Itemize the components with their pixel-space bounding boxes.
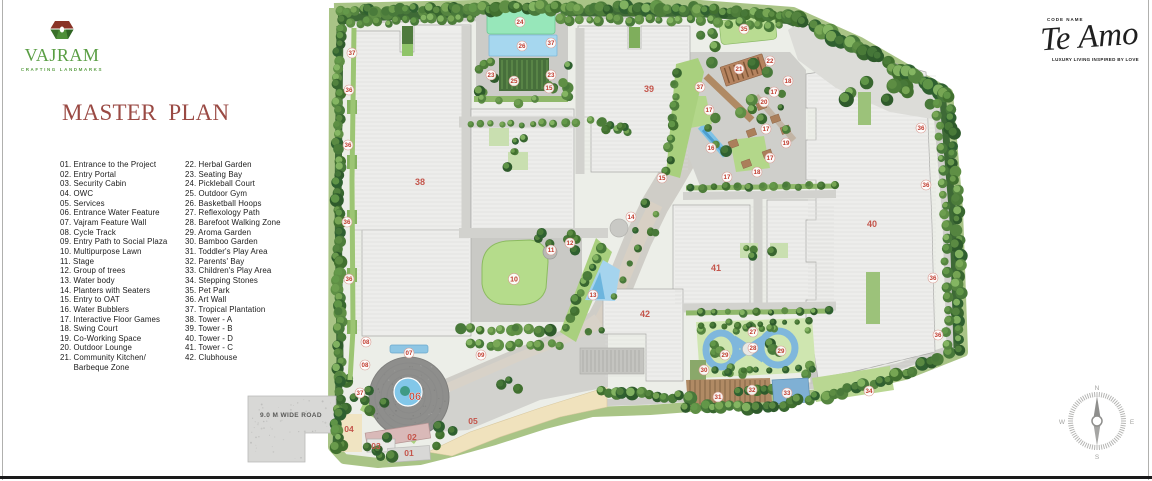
svg-text:18: 18 xyxy=(754,169,761,176)
svg-text:30: 30 xyxy=(701,367,708,374)
svg-text:11: 11 xyxy=(548,247,555,254)
svg-text:09: 09 xyxy=(478,352,485,359)
svg-text:17: 17 xyxy=(763,126,770,133)
svg-text:04: 04 xyxy=(344,424,354,434)
svg-text:16: 16 xyxy=(708,145,715,152)
svg-text:36: 36 xyxy=(345,142,352,149)
svg-text:01: 01 xyxy=(404,448,414,458)
svg-text:22: 22 xyxy=(767,58,774,65)
svg-text:35: 35 xyxy=(741,26,748,33)
svg-text:13: 13 xyxy=(590,292,597,299)
svg-text:24: 24 xyxy=(517,19,524,26)
svg-text:02: 02 xyxy=(407,432,417,442)
svg-text:38: 38 xyxy=(415,177,425,187)
svg-text:36: 36 xyxy=(346,87,353,94)
svg-text:42: 42 xyxy=(640,309,650,319)
svg-text:36: 36 xyxy=(344,219,351,226)
svg-text:40: 40 xyxy=(867,219,877,229)
svg-text:20: 20 xyxy=(761,99,768,106)
svg-text:14: 14 xyxy=(628,214,635,221)
svg-text:37: 37 xyxy=(548,40,555,47)
svg-text:37: 37 xyxy=(357,390,364,397)
svg-text:17: 17 xyxy=(771,89,778,96)
svg-text:36: 36 xyxy=(918,125,925,132)
svg-text:36: 36 xyxy=(930,275,937,282)
svg-text:9.0 M WIDE ROAD: 9.0 M WIDE ROAD xyxy=(260,412,322,419)
svg-text:28: 28 xyxy=(750,345,757,352)
svg-text:07: 07 xyxy=(406,350,413,357)
svg-text:39: 39 xyxy=(644,84,654,94)
svg-text:27: 27 xyxy=(750,329,757,336)
svg-text:15: 15 xyxy=(659,175,666,182)
svg-text:29: 29 xyxy=(778,348,785,355)
svg-text:08: 08 xyxy=(363,339,370,346)
svg-text:36: 36 xyxy=(935,332,942,339)
svg-text:41: 41 xyxy=(711,263,721,273)
svg-text:37: 37 xyxy=(349,50,356,57)
svg-text:23: 23 xyxy=(488,72,495,79)
svg-text:17: 17 xyxy=(724,174,731,181)
svg-text:26: 26 xyxy=(519,43,526,50)
svg-text:18: 18 xyxy=(785,78,792,85)
svg-text:17: 17 xyxy=(767,155,774,162)
svg-text:32: 32 xyxy=(749,387,756,394)
svg-text:33: 33 xyxy=(784,390,791,397)
svg-text:10: 10 xyxy=(510,277,518,284)
svg-text:31: 31 xyxy=(715,394,722,401)
svg-text:08: 08 xyxy=(362,362,369,369)
svg-text:06: 06 xyxy=(409,391,421,403)
svg-text:25: 25 xyxy=(511,78,518,85)
svg-text:03: 03 xyxy=(371,441,381,451)
svg-text:36: 36 xyxy=(923,182,930,189)
svg-text:21: 21 xyxy=(736,66,743,73)
svg-text:15: 15 xyxy=(546,85,553,92)
svg-text:05: 05 xyxy=(468,416,478,426)
svg-text:34: 34 xyxy=(866,388,873,395)
svg-text:36: 36 xyxy=(346,276,353,283)
svg-text:37: 37 xyxy=(697,84,704,91)
svg-text:17: 17 xyxy=(706,107,713,114)
svg-text:23: 23 xyxy=(548,72,555,79)
svg-text:12: 12 xyxy=(567,240,574,247)
svg-text:29: 29 xyxy=(722,352,729,359)
svg-text:19: 19 xyxy=(783,140,790,147)
